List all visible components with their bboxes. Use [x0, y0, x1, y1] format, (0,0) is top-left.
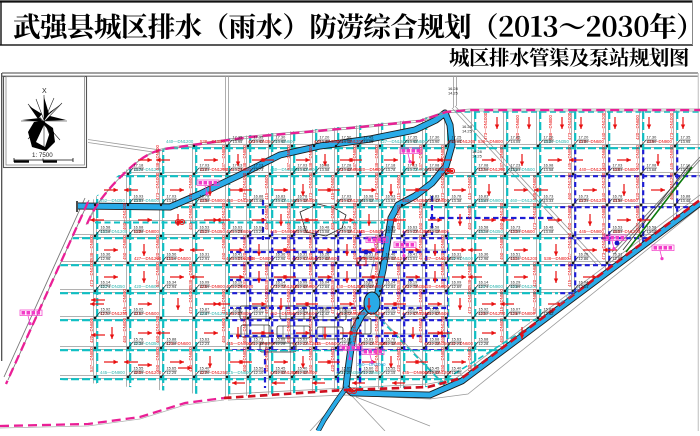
svg-text:538—DN800: 538—DN800	[467, 262, 472, 287]
svg-text:450—DN800: 450—DN800	[286, 235, 291, 260]
svg-text:13.78: 13.78	[386, 167, 396, 172]
svg-text:483—DN600: 483—DN600	[221, 318, 226, 343]
svg-text:445—DN900: 445—DN900	[100, 370, 125, 375]
svg-text:420—DN600: 420—DN600	[635, 115, 640, 140]
svg-text:483—DN600: 483—DN600	[499, 318, 504, 343]
svg-text:13.63: 13.63	[342, 198, 352, 203]
svg-text:12.38: 12.38	[134, 341, 144, 346]
svg-text:12.91: 12.91	[452, 256, 462, 261]
svg-text:420—DN600: 420—DN600	[424, 284, 449, 289]
svg-text:483—DN600: 483—DN600	[352, 318, 357, 343]
svg-text:12.89: 12.89	[511, 284, 521, 289]
svg-text:13.33: 13.33	[544, 198, 554, 203]
svg-text:13.48: 13.48	[681, 198, 691, 203]
svg-text:538—DN800: 538—DN800	[544, 256, 569, 261]
svg-text:12.23: 12.23	[452, 341, 462, 346]
svg-text:415—DN500: 415—DN500	[467, 175, 472, 200]
svg-text:450—DN800: 450—DN800	[499, 235, 504, 260]
svg-text:538—DN800: 538—DN800	[478, 139, 503, 144]
svg-text:13.80: 13.80	[544, 139, 555, 144]
svg-text:473—DN1000: 473—DN1000	[483, 112, 488, 140]
svg-text:13.38: 13.38	[200, 198, 210, 203]
svg-text:12.47: 12.47	[200, 311, 210, 316]
svg-text:537—DN800: 537—DN800	[440, 262, 445, 287]
svg-text:537—DN800: 537—DN800	[221, 145, 226, 170]
svg-text:13.95: 13.95	[254, 139, 264, 144]
svg-text:12.57: 12.57	[408, 311, 418, 316]
svg-text:12.74: 12.74	[276, 284, 287, 289]
svg-text:13.28: 13.28	[386, 229, 396, 234]
svg-text:12.84: 12.84	[386, 284, 397, 289]
svg-text:415—DN500: 415—DN500	[499, 289, 504, 314]
svg-text:13.18: 13.18	[647, 229, 657, 234]
svg-text:483—DN600: 483—DN600	[264, 205, 269, 230]
svg-text:415—DN500: 415—DN500	[567, 262, 572, 287]
svg-text:450—DN800: 450—DN800	[440, 347, 445, 372]
svg-text:13.43: 13.43	[276, 198, 286, 203]
svg-text:445—DN900: 445—DN900	[567, 145, 572, 170]
svg-text:427—DN1250: 427—DN1250	[567, 232, 572, 260]
svg-text:14.25: 14.25	[472, 154, 482, 159]
svg-text:538—DN800: 538—DN800	[601, 205, 606, 230]
svg-text:473—DN1000: 473—DN1000	[467, 286, 472, 314]
svg-text:420—DN600: 420—DN600	[635, 175, 640, 200]
svg-text:13.33: 13.33	[579, 198, 589, 203]
svg-text:13.48: 13.48	[254, 198, 264, 203]
svg-text:13.01: 13.01	[233, 256, 243, 261]
svg-text:12.00: 12.00	[298, 370, 309, 375]
svg-text:537—DN800: 537—DN800	[635, 205, 640, 230]
svg-text:415—DN500: 415—DN500	[396, 175, 401, 200]
svg-text:537—DN800: 537—DN800	[374, 262, 379, 287]
svg-text:13.73: 13.73	[254, 167, 264, 172]
svg-text:460—DN1200: 460—DN1200	[669, 172, 674, 200]
svg-text:415—DN500: 415—DN500	[221, 289, 226, 314]
svg-text:13.88: 13.88	[342, 167, 352, 172]
svg-text:460—DN1200: 460—DN1200	[440, 315, 445, 343]
svg-text:450—DN800: 450—DN800	[221, 235, 226, 260]
svg-text:13.01: 13.01	[408, 256, 418, 261]
svg-text:13.90: 13.90	[276, 139, 287, 144]
svg-text:460—DN1200: 460—DN1200	[221, 202, 226, 230]
svg-text:13.23: 13.23	[254, 229, 264, 234]
svg-text:13.68: 13.68	[430, 167, 440, 172]
svg-text:14.10: 14.10	[342, 139, 353, 144]
svg-text:415—DN500: 415—DN500	[122, 289, 127, 314]
svg-text:13.73: 13.73	[233, 167, 243, 172]
svg-text:537—DN800: 537—DN800	[308, 262, 313, 287]
svg-text:473—DN1000: 473—DN1000	[264, 286, 269, 314]
svg-text:13.23: 13.23	[233, 229, 243, 234]
svg-text:12.28: 12.28	[479, 341, 489, 346]
svg-text:483—DN600: 483—DN600	[467, 205, 472, 230]
svg-text:12.52: 12.52	[430, 311, 440, 316]
svg-text:415—DN500: 415—DN500	[418, 289, 423, 314]
svg-text:483—DN600: 483—DN600	[396, 205, 401, 230]
svg-text:13.90: 13.90	[430, 139, 441, 144]
svg-text:13.28: 13.28	[134, 229, 144, 234]
svg-text:13.63: 13.63	[200, 167, 210, 172]
svg-text:12.86: 12.86	[320, 256, 330, 261]
svg-text:473—DN1000: 473—DN1000	[601, 232, 606, 260]
svg-text:460—DN1200: 460—DN1200	[155, 315, 160, 343]
svg-text:13.73: 13.73	[408, 167, 418, 172]
svg-text:12.94: 12.94	[167, 284, 178, 289]
svg-text:12.79: 12.79	[408, 284, 418, 289]
svg-text:420—DN600: 420—DN600	[188, 347, 193, 372]
svg-text:460—DN1200: 460—DN1200	[242, 315, 247, 343]
svg-text:460—DN1200: 460—DN1200	[286, 202, 291, 230]
svg-text:12.69: 12.69	[298, 284, 308, 289]
svg-text:473—DN1000: 473—DN1000	[567, 112, 572, 140]
svg-text:473—DN1000: 473—DN1000	[440, 172, 445, 200]
svg-text:13.58: 13.58	[320, 167, 330, 172]
svg-text:12.57: 12.57	[254, 311, 264, 316]
svg-text:460—DN1200: 460—DN1200	[352, 202, 357, 230]
svg-text:420—DN600: 420—DN600	[264, 347, 269, 372]
svg-text:537—DN800: 537—DN800	[352, 145, 357, 170]
svg-text:420—DN600: 420—DN600	[242, 235, 247, 260]
svg-text:13.43: 13.43	[479, 198, 489, 203]
svg-text:450—DN800: 450—DN800	[242, 347, 247, 372]
svg-text:13.95: 13.95	[233, 139, 243, 144]
svg-text:13.33: 13.33	[511, 229, 521, 234]
svg-text:14.25: 14.25	[448, 91, 458, 96]
svg-text:537—DN800: 537—DN800	[242, 262, 247, 287]
svg-text:450—DN800: 450—DN800	[122, 235, 127, 260]
svg-text:13.53: 13.53	[134, 198, 144, 203]
svg-text:483—DN600: 483—DN600	[601, 145, 606, 170]
svg-text:12.52: 12.52	[479, 311, 489, 316]
svg-text:13.18: 13.18	[479, 229, 489, 234]
svg-text:13.80: 13.80	[579, 139, 590, 144]
svg-text:13.18: 13.18	[101, 229, 111, 234]
svg-text:1: 7500: 1: 7500	[32, 152, 53, 159]
svg-text:13.78: 13.78	[134, 167, 144, 172]
svg-text:250—DN2000: 250—DN2000	[357, 362, 386, 367]
svg-text:440—DN1200: 440—DN1200	[166, 139, 194, 144]
svg-text:13.63: 13.63	[167, 198, 177, 203]
svg-text:13.68: 13.68	[479, 167, 489, 172]
svg-text:538—DN800: 538—DN800	[374, 145, 379, 170]
svg-text:13.11: 13.11	[364, 256, 373, 261]
svg-text:460—DN1200: 460—DN1200	[308, 315, 313, 343]
svg-text:473—DN1000: 473—DN1000	[374, 172, 379, 200]
svg-text:420—DN600: 420—DN600	[308, 235, 313, 260]
svg-text:13.38: 13.38	[452, 198, 462, 203]
svg-text:537—DN800: 537—DN800	[532, 289, 537, 314]
svg-text:538—DN800: 538—DN800	[188, 262, 193, 287]
svg-text:12.48: 12.48	[167, 341, 177, 346]
svg-text:537—DN800: 537—DN800	[286, 145, 291, 170]
svg-text:12.96: 12.96	[101, 256, 111, 261]
svg-text:538—DN800: 538—DN800	[248, 256, 273, 261]
svg-text:460—DN1200: 460—DN1200	[499, 202, 504, 230]
svg-text:13.16: 13.16	[167, 256, 177, 261]
svg-text:452—DN350: 452—DN350	[100, 198, 125, 203]
svg-text:538—DN800: 538—DN800	[200, 139, 225, 144]
svg-text:538—DN800: 538—DN800	[264, 262, 269, 287]
svg-text:12.64: 12.64	[320, 284, 331, 289]
svg-text:12.25: 12.25	[167, 370, 177, 375]
svg-text:473—DN1000: 473—DN1000	[155, 172, 160, 200]
svg-text:13.68: 13.68	[647, 167, 657, 172]
svg-text:12.79: 12.79	[233, 284, 243, 289]
svg-text:460—DN1200: 460—DN1200	[567, 172, 572, 200]
svg-text:420—DN600: 420—DN600	[155, 235, 160, 260]
svg-text:420—DN600: 420—DN600	[396, 347, 401, 372]
svg-text:415—DN500: 415—DN500	[226, 370, 251, 375]
svg-text:12.15: 12.15	[134, 370, 144, 375]
svg-text:13.11: 13.11	[511, 256, 520, 261]
svg-text:420—DN600: 420—DN600	[532, 262, 537, 287]
svg-text:12.25: 12.25	[342, 370, 352, 375]
svg-text:483—DN600: 483—DN600	[122, 318, 127, 343]
svg-text:483—DN600: 483—DN600	[188, 205, 193, 230]
svg-text:473—DN1000: 473—DN1000	[396, 286, 401, 314]
svg-text:12.57: 12.57	[233, 311, 243, 316]
svg-text:13.18: 13.18	[430, 229, 440, 234]
svg-text:14.25: 14.25	[462, 129, 472, 134]
svg-text:460—DN1200: 460—DN1200	[226, 198, 254, 203]
svg-text:450—DN800: 450—DN800	[155, 347, 160, 372]
svg-text:12.74: 12.74	[479, 284, 490, 289]
svg-text:13.13: 13.13	[298, 229, 308, 234]
svg-text:538—DN800: 538—DN800	[330, 262, 335, 287]
svg-text:12.28: 12.28	[276, 341, 286, 346]
svg-text:13.85: 13.85	[452, 139, 462, 144]
svg-text:12.33: 12.33	[254, 341, 264, 346]
svg-text:13.38: 13.38	[342, 229, 352, 234]
svg-text:473—DN1000: 473—DN1000	[188, 286, 193, 314]
svg-text:12.47: 12.47	[298, 311, 308, 316]
svg-text:452—DN350: 452—DN350	[635, 145, 640, 170]
svg-text:415—DN500: 415—DN500	[286, 289, 291, 314]
svg-text:12.10: 12.10	[254, 370, 265, 375]
svg-text:12.00: 12.00	[452, 370, 463, 375]
svg-text:538—DN800: 538—DN800	[242, 145, 247, 170]
svg-text:415—DN500: 415—DN500	[314, 341, 339, 346]
svg-text:13.58: 13.58	[544, 167, 554, 172]
svg-text:12.64: 12.64	[579, 284, 590, 289]
svg-text:538—DN800: 538—DN800	[440, 145, 445, 170]
svg-text:415—DN500: 415—DN500	[188, 175, 193, 200]
svg-text:473—DN1000: 473—DN1000	[242, 172, 247, 200]
svg-text:12.91: 12.91	[613, 256, 623, 261]
svg-text:538—DN800: 538—DN800	[396, 262, 401, 287]
svg-text:538—DN800: 538—DN800	[155, 145, 160, 170]
svg-text:12.42: 12.42	[544, 311, 554, 316]
svg-text:14.05: 14.05	[511, 139, 521, 144]
svg-text:473—DN1000: 473—DN1000	[669, 112, 674, 140]
svg-text:473—DN1000: 473—DN1000	[308, 172, 313, 200]
svg-text:13.38: 13.38	[298, 198, 308, 203]
svg-text:12.05: 12.05	[276, 370, 286, 375]
svg-text:460—DN1200: 460—DN1200	[418, 202, 423, 230]
svg-text:420—DN600: 420—DN600	[440, 235, 445, 260]
svg-text:X: X	[42, 88, 47, 95]
svg-text:537—DN800: 537—DN800	[499, 145, 504, 170]
svg-text:483—DN600: 483—DN600	[286, 318, 291, 343]
svg-text:13.06: 13.06	[386, 256, 396, 261]
svg-text:420—DN600: 420—DN600	[89, 318, 94, 343]
svg-text:13.90: 13.90	[647, 139, 658, 144]
svg-text:12.52: 12.52	[101, 311, 111, 316]
svg-text:460—DN1200: 460—DN1200	[374, 315, 379, 343]
svg-text:440—DN1200: 440—DN1200	[601, 172, 606, 200]
svg-text:12.91: 12.91	[298, 256, 308, 261]
svg-text:538—DN800: 538—DN800	[532, 175, 537, 200]
svg-text:538—DN800: 538—DN800	[89, 235, 94, 260]
svg-text:440—DN1200: 440—DN1200	[601, 112, 606, 140]
svg-text:473—DN1000: 473—DN1000	[532, 202, 537, 230]
svg-text:12.00: 12.00	[200, 370, 211, 375]
svg-text:12.96: 12.96	[479, 256, 489, 261]
svg-text:12.72: 12.72	[342, 311, 352, 316]
svg-text:14.05: 14.05	[364, 139, 374, 144]
svg-text:415—DN500: 415—DN500	[330, 175, 335, 200]
svg-text:420—DN600: 420—DN600	[358, 167, 383, 172]
svg-text:13.53: 13.53	[386, 198, 396, 203]
svg-text:12.74: 12.74	[101, 284, 112, 289]
svg-text:13.08: 13.08	[544, 229, 554, 234]
svg-text:450—DN800: 450—DN800	[308, 347, 313, 372]
svg-text:12.69: 12.69	[200, 284, 210, 289]
svg-text:13.23: 13.23	[408, 229, 418, 234]
svg-text:13.13: 13.13	[200, 229, 210, 234]
svg-text:420—DN600: 420—DN600	[467, 347, 472, 372]
svg-text:12.43: 12.43	[364, 341, 374, 346]
svg-text:473—DN1000: 473—DN1000	[330, 286, 335, 314]
svg-text:483—DN600: 483—DN600	[330, 205, 335, 230]
svg-text:13.63: 13.63	[298, 167, 308, 172]
svg-text:415—DN500: 415—DN500	[352, 289, 357, 314]
svg-text:415—DN500: 415—DN500	[358, 229, 383, 234]
svg-text:415—DN500: 415—DN500	[264, 175, 269, 200]
svg-text:12.42: 12.42	[320, 311, 330, 316]
svg-text:420—DN600: 420—DN600	[330, 347, 335, 372]
svg-text:13.58: 13.58	[364, 198, 374, 203]
svg-text:13.43: 13.43	[430, 198, 440, 203]
svg-text:537—DN800: 537—DN800	[89, 347, 94, 372]
svg-text:473—DN1000: 473—DN1000	[89, 259, 94, 287]
svg-text:12.69: 12.69	[452, 284, 462, 289]
svg-text:12.86: 12.86	[579, 256, 589, 261]
svg-text:12.23: 12.23	[298, 341, 308, 346]
svg-text:537—DN800: 537—DN800	[155, 262, 160, 287]
svg-text:12.23: 12.23	[200, 341, 210, 346]
svg-text:483—DN600: 483—DN600	[418, 318, 423, 343]
svg-text:450—DN800: 450—DN800	[418, 235, 423, 260]
svg-text:12.05: 12.05	[430, 370, 440, 375]
svg-text:13.38: 13.38	[613, 198, 623, 203]
svg-text:12.28: 12.28	[430, 341, 440, 346]
svg-text:12.91: 12.91	[200, 256, 210, 261]
svg-text:450—DN800: 450—DN800	[352, 235, 357, 260]
svg-text:13.80: 13.80	[320, 139, 331, 144]
svg-text:13.95: 13.95	[681, 139, 691, 144]
svg-text:12.96: 12.96	[276, 256, 286, 261]
svg-text:460—DN1200: 460—DN1200	[358, 311, 386, 316]
svg-text:450—DN800: 450—DN800	[567, 205, 572, 230]
svg-text:538—DN800: 538—DN800	[308, 145, 313, 170]
svg-text:13.63: 13.63	[613, 167, 623, 172]
svg-text:12.38: 12.38	[386, 341, 396, 346]
svg-text:445—DN900: 445—DN900	[669, 145, 674, 170]
svg-text:12.62: 12.62	[386, 311, 396, 316]
svg-text:460—DN1200: 460—DN1200	[122, 202, 127, 230]
svg-text:12.89: 12.89	[364, 284, 374, 289]
svg-text:13.08: 13.08	[320, 229, 330, 234]
svg-text:12.20: 12.20	[364, 370, 375, 375]
svg-text:13.13: 13.13	[613, 229, 623, 234]
svg-text:13.95: 13.95	[408, 139, 418, 144]
svg-text:12.15: 12.15	[386, 370, 396, 375]
svg-text:12.67: 12.67	[511, 311, 521, 316]
svg-text:13.73: 13.73	[681, 167, 691, 172]
svg-text:12.62: 12.62	[134, 311, 144, 316]
svg-text:13.83: 13.83	[511, 167, 521, 172]
